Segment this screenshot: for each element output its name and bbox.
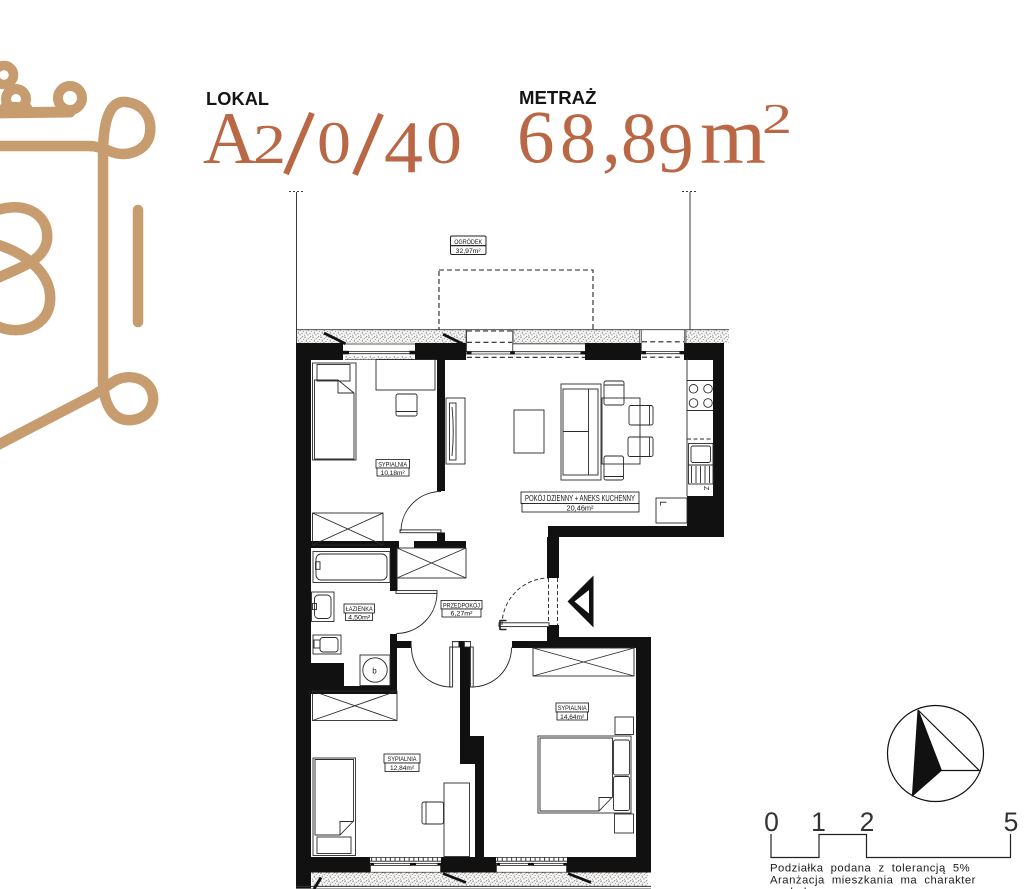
svg-text:POKÓJ DZIENNY + ANEKS KUCHENNY: POKÓJ DZIENNY + ANEKS KUCHENNY: [525, 494, 636, 503]
svg-text:4: 4: [384, 107, 423, 189]
svg-text:Podziałka podana z tolerancją: Podziałka podana z tolerancją 5%: [770, 863, 970, 875]
svg-text:L: L: [658, 501, 668, 506]
svg-text:0: 0: [317, 110, 351, 176]
svg-text:32,97m²: 32,97m²: [456, 248, 481, 255]
svg-text:2: 2: [860, 807, 875, 837]
svg-text:10,18m²: 10,18m²: [381, 470, 405, 477]
svg-text:m: m: [700, 93, 766, 181]
svg-text:Aranżacja mieszkania ma charak: Aranżacja mieszkania ma charakter: [770, 875, 976, 887]
svg-text:2: 2: [762, 97, 792, 143]
svg-text:SYPIALNIA: SYPIALNIA: [558, 705, 588, 712]
svg-text:5: 5: [1004, 807, 1019, 837]
svg-text:0: 0: [426, 110, 462, 176]
svg-text:SYPIALNIA: SYPIALNIA: [378, 461, 408, 468]
svg-text:2: 2: [253, 114, 286, 176]
svg-text:8: 8: [621, 99, 657, 179]
svg-text:,: ,: [602, 97, 621, 180]
svg-text:Z: Z: [702, 486, 709, 491]
svg-text:8: 8: [560, 99, 596, 179]
svg-text:14,64m²: 14,64m²: [560, 714, 584, 721]
svg-text:6,27m²: 6,27m²: [451, 611, 473, 618]
svg-text:4,50m²: 4,50m²: [348, 614, 370, 621]
svg-text:A: A: [203, 98, 256, 180]
svg-text:12,84m²: 12,84m²: [390, 765, 414, 772]
svg-text:0: 0: [764, 807, 779, 837]
svg-text:b: b: [372, 667, 377, 676]
svg-text:20,46m²: 20,46m²: [567, 506, 595, 513]
svg-text:PRZEDPOKÓJ: PRZEDPOKÓJ: [443, 600, 480, 609]
svg-text:9: 9: [658, 110, 694, 188]
svg-text:6: 6: [517, 97, 555, 180]
svg-text:SYPIALNIA: SYPIALNIA: [388, 756, 418, 763]
svg-text:ŁAZIENKA: ŁAZIENKA: [346, 606, 374, 613]
svg-text:OGRÓDEK: OGRÓDEK: [454, 237, 483, 246]
svg-text:1: 1: [811, 807, 826, 837]
